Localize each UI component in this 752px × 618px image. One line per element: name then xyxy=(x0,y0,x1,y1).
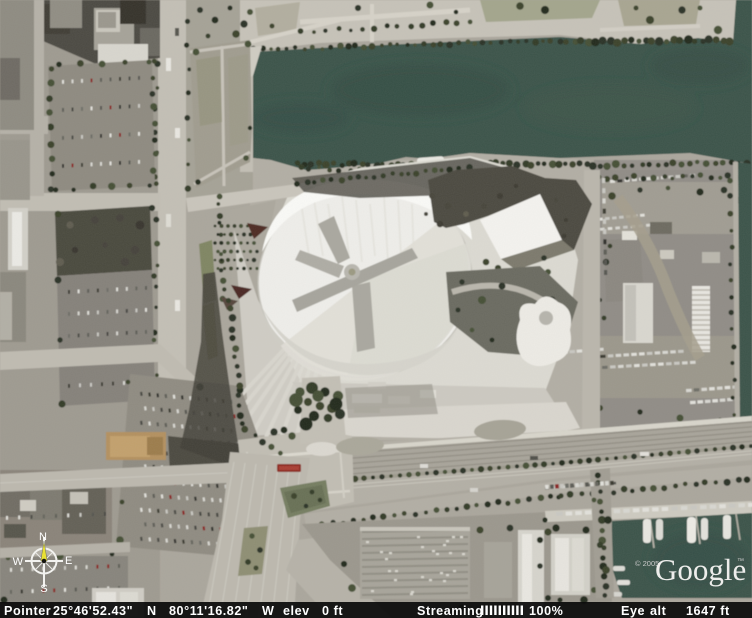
svg-text:™: ™ xyxy=(737,558,744,565)
svg-text:W: W xyxy=(13,556,24,568)
svg-text:0 ft: 0 ft xyxy=(322,604,343,618)
svg-text:Streaming: Streaming xyxy=(417,604,484,618)
svg-text:W: W xyxy=(262,604,274,618)
svg-text:80°11'16.82": 80°11'16.82" xyxy=(169,604,248,618)
svg-text:alt: alt xyxy=(650,604,667,618)
svg-text:S: S xyxy=(40,583,47,595)
svg-text:E: E xyxy=(65,555,72,567)
svg-text:N: N xyxy=(39,531,47,543)
svg-text:100%: 100% xyxy=(529,604,563,618)
svg-text:N: N xyxy=(147,604,157,618)
svg-text:1647 ft: 1647 ft xyxy=(686,604,730,618)
svg-text:Pointer: Pointer xyxy=(4,604,51,618)
svg-text:Eye: Eye xyxy=(621,604,645,618)
svg-text:elev: elev xyxy=(283,604,310,618)
svg-text:25°46'52.43": 25°46'52.43" xyxy=(53,604,133,618)
svg-text:Google: Google xyxy=(655,552,746,587)
